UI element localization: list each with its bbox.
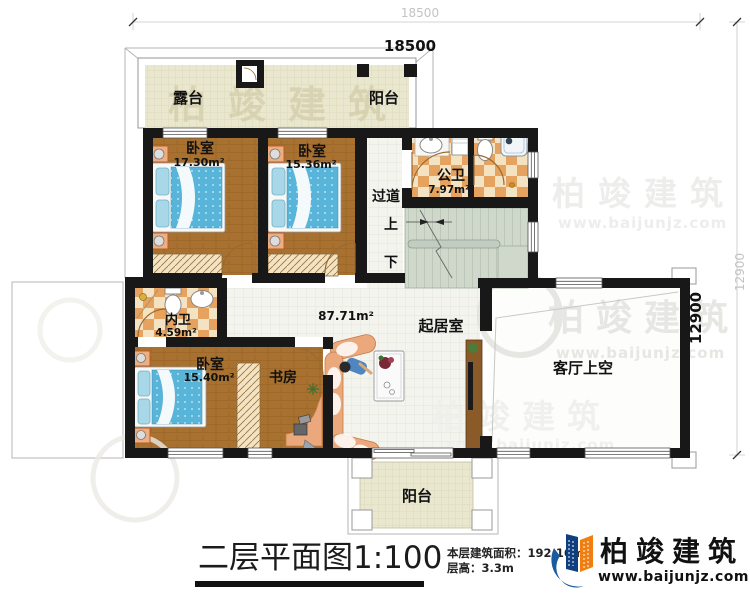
label-balcony-top: 阳台 <box>369 89 399 107</box>
floor-height-text: 层高：3.3m <box>446 561 514 575</box>
plan-title: 二层平面图1:100 <box>198 540 442 576</box>
label-public-bath-area: 7.97m² <box>428 184 470 196</box>
label-void: 客厅上空 <box>552 359 613 377</box>
label-bedroom1: 卧室 <box>186 140 214 157</box>
window <box>278 128 327 138</box>
brand-logo-icon <box>551 534 593 588</box>
title-underline <box>195 581 424 587</box>
toilet-icon <box>165 295 181 315</box>
label-private-bath: 内卫 <box>165 312 191 328</box>
title-block: 二层平面图1:100 本层建筑面积：192.16m² 层高：3.3m 柏竣建筑 … <box>195 534 749 588</box>
wardrobe-bedroom1 <box>152 254 222 276</box>
label-stair-down: 下 <box>384 255 398 271</box>
label-terrace: 露台 <box>173 89 203 107</box>
dim-top-light: 18500 <box>401 6 439 20</box>
window <box>497 448 530 458</box>
coffee-table <box>374 351 404 401</box>
label-study: 书房 <box>269 369 297 386</box>
staircase <box>405 208 528 288</box>
door-knob <box>510 183 515 188</box>
plant-icon <box>468 343 478 353</box>
label-stair-up: 上 <box>384 217 398 233</box>
watermark-topright-name: 柏竣建筑 <box>552 174 736 213</box>
label-private-bath-area: 4.59m² <box>155 327 197 339</box>
floor-plan-canvas: 柏竣建筑 柏竣建筑 www.baijunjz.com 柏竣建筑 www.baij… <box>0 0 750 596</box>
window <box>168 448 223 458</box>
label-bedroom1-area: 17.30m² <box>173 156 224 169</box>
watermark-topright-site: www.baijunjz.com <box>558 214 727 232</box>
dim-top-bold: 18500 <box>384 37 436 55</box>
shower-icon <box>140 294 147 301</box>
brand-name: 柏竣建筑 <box>600 535 744 568</box>
label-living-area: 87.71m² <box>318 309 374 323</box>
dim-right-bold: 12900 <box>687 292 705 344</box>
tv-icon <box>468 362 473 410</box>
label-balcony-bottom: 阳台 <box>402 487 432 505</box>
label-bedroom3-area: 15.40m² <box>183 371 234 384</box>
watermark-left-circle <box>40 300 100 360</box>
computer-icon <box>294 424 307 435</box>
label-public-bath: 公卫 <box>437 168 465 184</box>
window <box>556 278 602 288</box>
wardrobe-bedroom3 <box>237 363 260 449</box>
stair-handrail <box>408 240 500 248</box>
window <box>585 448 670 458</box>
sliding-door <box>372 448 453 458</box>
label-living: 起居室 <box>417 317 463 335</box>
window <box>163 128 207 138</box>
tv-cabinet <box>466 340 482 450</box>
window <box>528 152 538 178</box>
toilet-tank-icon <box>165 288 181 294</box>
dim-right-light: 12900 <box>733 253 747 291</box>
door-opening <box>402 150 412 188</box>
brand-website: www.baijunjz.com <box>598 569 749 585</box>
window <box>528 222 538 252</box>
label-hallway: 过道 <box>372 188 400 205</box>
terrace-column-door <box>242 66 257 82</box>
wardrobe-bedroom2 <box>268 254 338 276</box>
label-bedroom2-area: 15.36m² <box>285 158 336 171</box>
window <box>248 448 272 458</box>
floor-plan-page: 柏竣建筑 柏竣建筑 www.baijunjz.com 柏竣建筑 www.baij… <box>0 0 750 596</box>
